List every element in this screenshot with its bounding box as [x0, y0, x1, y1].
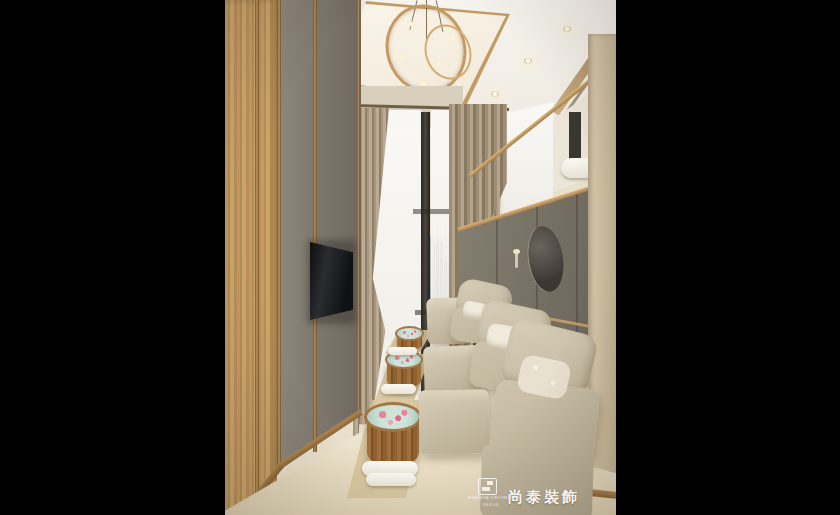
spa-room-photo: SHANGTAI DECORATION DESIGN 尚泰裝飾 [225, 0, 616, 515]
letterboxed-canvas: SHANGTAI DECORATION DESIGN 尚泰裝飾 [0, 0, 840, 515]
brand-watermark: SHANGTAI DECORATION DESIGN 尚泰裝飾 [462, 477, 602, 513]
watermark-english-line2: DESIGN [472, 503, 511, 506]
shangtai-logo-icon [478, 478, 497, 495]
photo-vignette [225, 0, 616, 515]
watermark-chinese-text: 尚泰裝飾 [508, 488, 580, 507]
